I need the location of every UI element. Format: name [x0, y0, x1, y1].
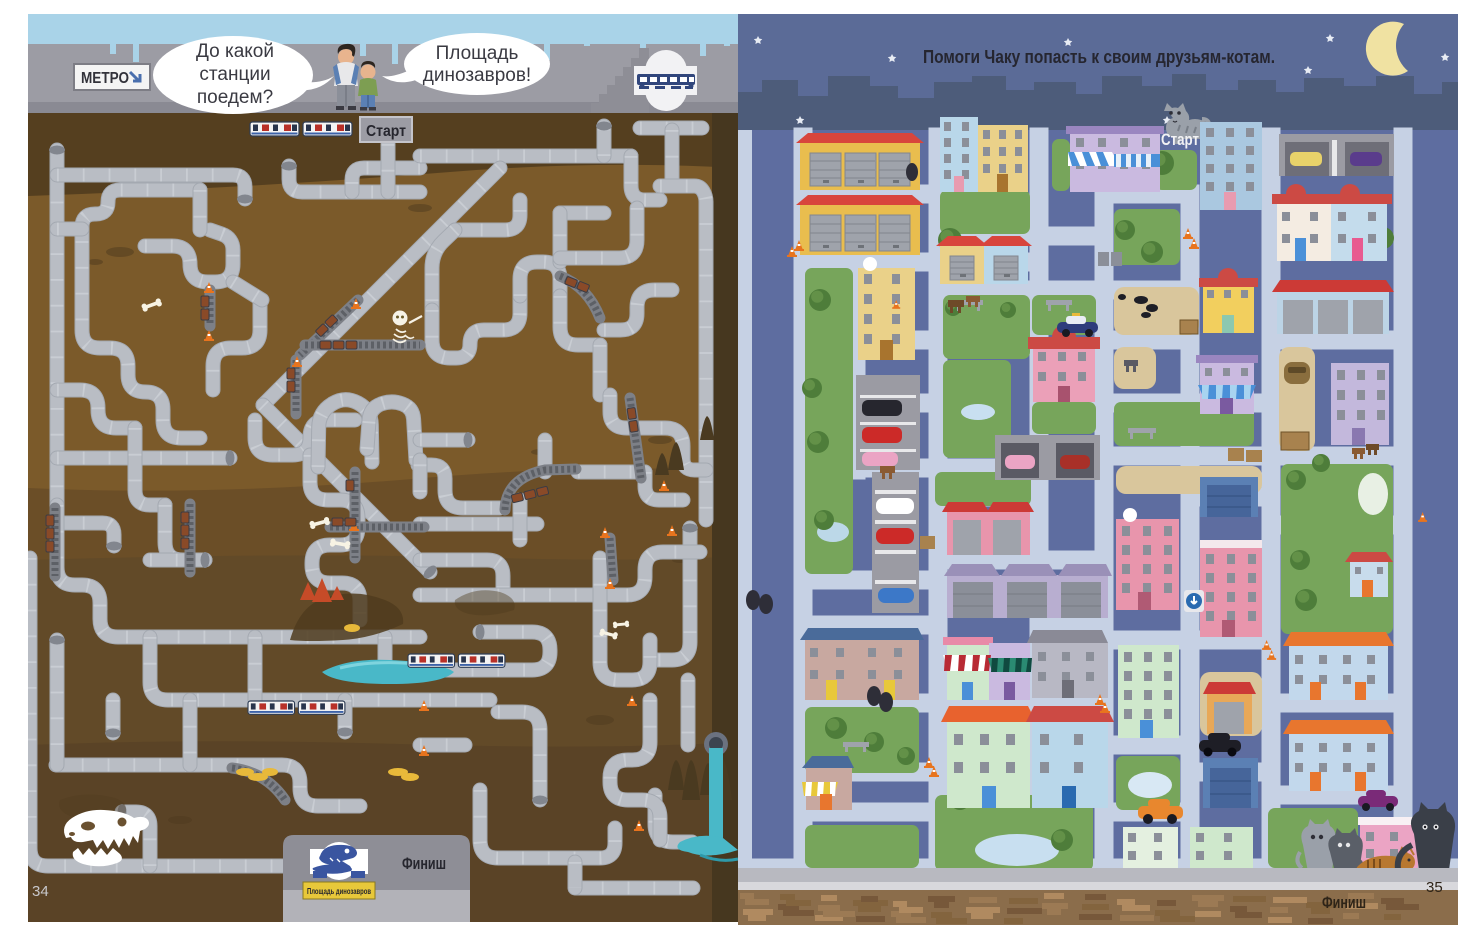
svg-text:динозавров!: динозавров!	[423, 65, 531, 86]
svg-text:станции: станции	[199, 64, 270, 85]
svg-text:МЕТРО: МЕТРО	[81, 70, 129, 87]
svg-text:поедем?: поедем?	[197, 87, 273, 108]
svg-text:Помоги Чаку попасть к свои: Помоги Чаку попасть к своим друзьям-кота…	[923, 47, 1275, 67]
svg-text:34: 34	[32, 883, 49, 900]
svg-text:Старт: Старт	[1161, 130, 1199, 149]
svg-text:До какой: До какой	[196, 41, 274, 62]
svg-text:35: 35	[1426, 879, 1443, 896]
svg-text:Финиш: Финиш	[1322, 893, 1366, 912]
svg-text:Площадь: Площадь	[436, 43, 519, 64]
svg-text:Финиш: Финиш	[402, 854, 446, 873]
svg-text:Площадь динозавров: Площадь динозавров	[307, 886, 371, 896]
svg-text:Старт: Старт	[366, 123, 406, 140]
